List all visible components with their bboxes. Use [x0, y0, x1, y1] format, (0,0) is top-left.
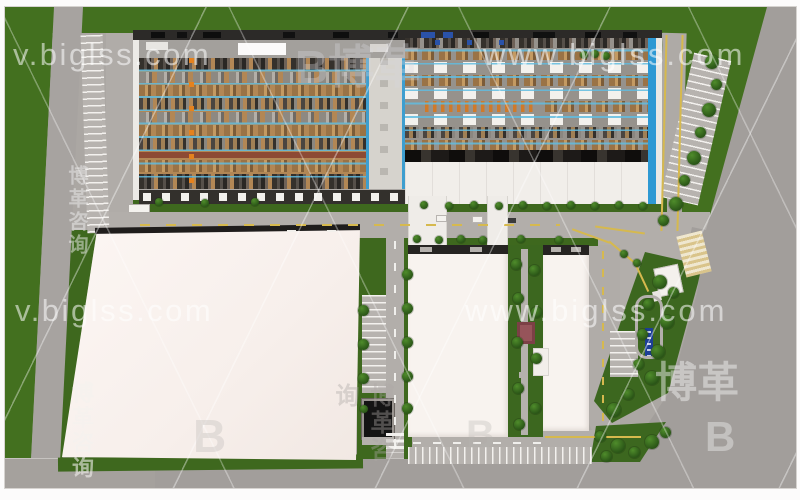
site-plan-render: v.biglss.com www.biglss.com v.biglss.com…: [0, 0, 800, 500]
vehicle: [473, 217, 482, 222]
tree: [615, 201, 623, 209]
tree: [531, 353, 542, 364]
factory-mezzanine-band: [405, 150, 648, 162]
watermark-logo-letter: B: [466, 413, 495, 458]
tree: [620, 250, 628, 258]
tree: [633, 259, 641, 267]
tree: [435, 236, 443, 244]
parking-stalls-south: [408, 447, 592, 464]
tree: [457, 235, 465, 243]
garden-pad: [519, 372, 527, 378]
vehicle: [437, 216, 446, 221]
tree: [155, 198, 163, 206]
tree: [470, 201, 478, 209]
tree: [711, 79, 722, 90]
watermark-logo: B博革: [295, 31, 420, 97]
tree: [639, 202, 647, 210]
tree: [251, 198, 259, 206]
tree: [530, 403, 541, 414]
tree: [511, 259, 522, 270]
rooftop-unit: [420, 247, 432, 252]
office-building-east: [543, 245, 589, 431]
tree: [702, 103, 716, 117]
watermark-vertical-cn: 博革咨询: [327, 383, 397, 488]
tree: [555, 236, 563, 244]
rooftop-unit: [571, 247, 581, 252]
tree: [514, 419, 525, 430]
office-east-roof-edge: [543, 245, 589, 255]
tree: [512, 337, 523, 348]
watermark-url: v.biglss.com: [13, 37, 211, 73]
orange-stations-column: [189, 58, 194, 189]
tree: [358, 305, 369, 316]
tree: [201, 199, 209, 207]
road-arrow: [327, 230, 336, 232]
tree: [653, 275, 667, 289]
skylight: [238, 43, 286, 55]
tree: [517, 235, 525, 243]
rooftop-unit: [551, 247, 561, 252]
tree: [513, 383, 524, 394]
road-arrow: [287, 230, 296, 232]
loading-dock-doors: [143, 193, 401, 201]
watermark-url: www.biglss.com: [465, 293, 728, 329]
tree: [402, 371, 413, 382]
lane-marking-yellow: [545, 436, 641, 438]
watermark-vertical-cn: 博革咨询: [62, 165, 91, 257]
tree: [623, 389, 634, 400]
vehicle: [508, 218, 516, 223]
tree: [529, 265, 540, 276]
parking-stalls-east: [610, 331, 638, 377]
lane-marking-yellow-dashed: [140, 224, 560, 226]
tree: [445, 202, 453, 210]
tree: [402, 303, 413, 314]
watermark-logo-letter: B: [193, 409, 226, 463]
watermark-url: www.biglss.com: [483, 37, 746, 73]
tree: [413, 235, 421, 243]
tree: [695, 127, 706, 138]
watermark-logo-cn: 博革: [328, 41, 420, 93]
tree: [519, 201, 527, 209]
tree: [591, 202, 599, 210]
garden-pad: [522, 267, 528, 275]
watermark-logo-letter: B: [705, 413, 735, 461]
truck: [129, 205, 149, 212]
tree: [601, 451, 612, 462]
rooftop-unit: [470, 247, 482, 252]
tree: [669, 197, 683, 211]
tree: [420, 201, 428, 209]
lane-marking-yellow-dashed: [602, 251, 604, 429]
factory-campus: v.biglss.com www.biglss.com v.biglss.com…: [5, 7, 796, 488]
tree: [595, 431, 606, 442]
watermark-logo-cn: 博革: [655, 349, 739, 410]
tree: [637, 329, 648, 340]
watermark-vertical-cn: 博革咨询: [65, 381, 97, 481]
tree: [660, 427, 671, 438]
tree: [629, 447, 640, 458]
rooftop-unit: [283, 32, 295, 38]
tree: [658, 215, 669, 226]
tree: [567, 201, 575, 209]
tree: [495, 202, 503, 210]
office-building-west: [408, 245, 508, 437]
tree: [687, 151, 701, 165]
watermark-url: v.biglss.com: [15, 293, 213, 329]
tree: [679, 175, 690, 186]
tree: [402, 269, 413, 280]
tree: [645, 435, 659, 449]
tree: [402, 337, 413, 348]
tree: [607, 403, 621, 417]
tree: [633, 359, 644, 370]
tree: [543, 202, 551, 210]
tree: [402, 403, 413, 414]
watermark-logo-letter: B: [295, 41, 328, 93]
tree: [358, 339, 369, 350]
tree: [611, 439, 625, 453]
tree: [479, 236, 487, 244]
